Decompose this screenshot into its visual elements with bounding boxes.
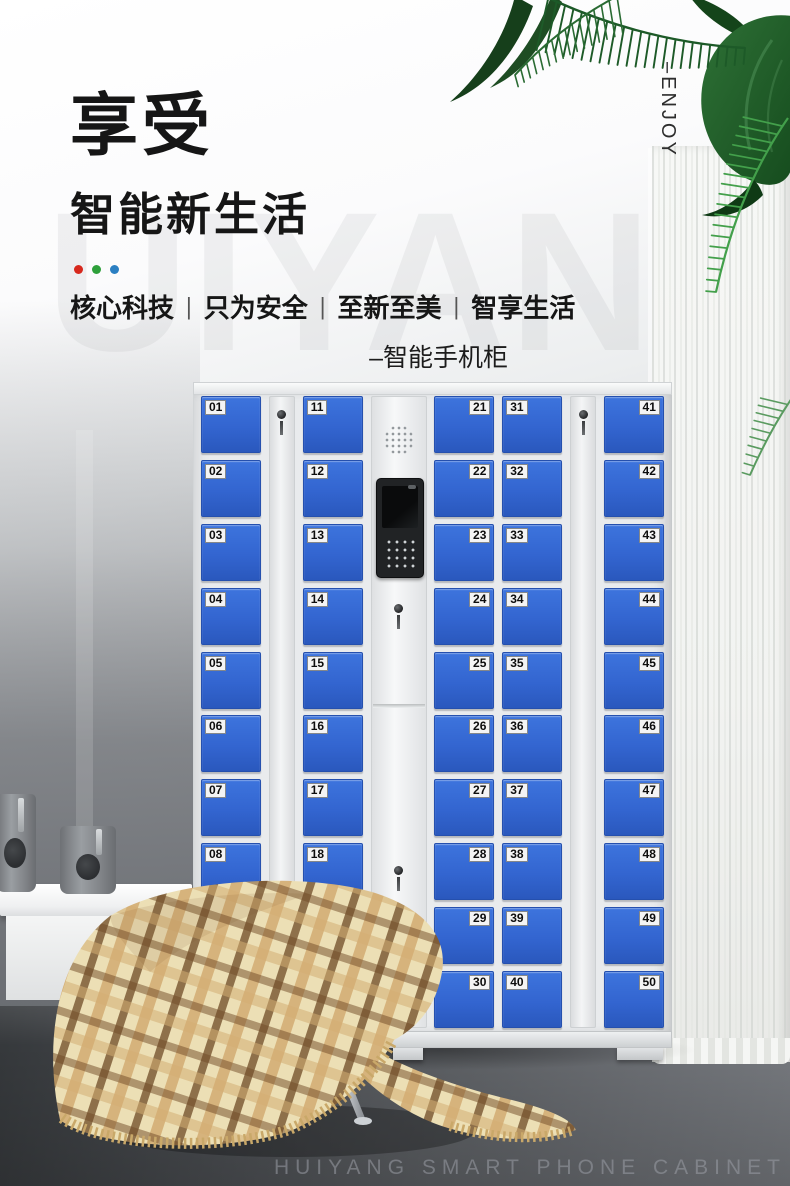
locker-door: 13 (303, 524, 363, 581)
locker-number-label: 44 (639, 592, 660, 607)
locker-number-label: 16 (307, 719, 328, 734)
tagline-part: 只为安全 (204, 288, 308, 325)
locker-number-label: 20 (307, 975, 328, 990)
locker-number-label: 37 (506, 783, 527, 798)
locker-number-label: 38 (506, 847, 527, 862)
tricolor-dots (74, 265, 575, 274)
locker-door: 20 (303, 971, 363, 1028)
locker-number-label: 12 (307, 464, 328, 479)
locker-door: 46 (604, 715, 664, 772)
locker-number-label: 50 (639, 975, 660, 990)
locker-number-label: 28 (469, 847, 490, 862)
cabinet-foot (617, 1046, 663, 1060)
locker-number-label: 11 (307, 400, 328, 415)
blue-dot-icon (110, 265, 119, 274)
locker-door: 23 (434, 524, 494, 581)
locker-door: 04 (201, 588, 261, 645)
sideboard-front (6, 916, 186, 1000)
locker-number-label: 35 (506, 656, 527, 671)
vase-glint (18, 798, 24, 832)
locker-number-label: 03 (205, 528, 226, 543)
locker-door: 45 (604, 652, 664, 709)
locker-number-label: 42 (639, 464, 660, 479)
locker-door: 26 (434, 715, 494, 772)
locker-door: 19 (303, 907, 363, 964)
locker-number-label: 04 (205, 592, 226, 607)
locker-door: 31 (502, 396, 562, 453)
keypad-icon (385, 538, 415, 568)
locker-number-label: 24 (469, 592, 490, 607)
locker-door: 15 (303, 652, 363, 709)
key-lock-icon (394, 604, 404, 629)
footer-watermark-text: HUIYANG SMART PHONE CABINET (274, 1156, 786, 1180)
locker-number-label: 23 (469, 528, 490, 543)
locker-number-label: 46 (639, 719, 660, 734)
locker-door: 34 (502, 588, 562, 645)
locker-door: 39 (502, 907, 562, 964)
locker-number-label: 13 (307, 528, 328, 543)
locker-number-label: 33 (506, 528, 527, 543)
locker-number-label: 25 (469, 656, 490, 671)
white-sideboard (0, 884, 192, 1006)
locker-number-label: 49 (639, 911, 660, 926)
locker-number-label: 45 (639, 656, 660, 671)
hero-text-block: 享受 智能新生活 核心科技 | 只为安全 | 至新至美 | 智享生活 –智能手机… (70, 92, 575, 374)
locker-number-label: 40 (506, 975, 527, 990)
locker-number-label: 08 (205, 847, 226, 862)
doors-41-50: 41424344454647484950 (604, 396, 664, 1028)
cabinet-columns: 0102030405060708091011121314151617181920… (201, 396, 664, 1028)
locker-number-label: 21 (469, 400, 490, 415)
locker-door: 10 (201, 971, 261, 1028)
locker-door: 32 (502, 460, 562, 517)
locker-number-label: 17 (307, 783, 328, 798)
tagline-part: 核心科技 (70, 288, 174, 325)
hero-title: 享受 (70, 92, 575, 160)
locker-door: 22 (434, 460, 494, 517)
locker-number-label: 41 (639, 400, 660, 415)
locker-door: 12 (303, 460, 363, 517)
locker-door: 01 (201, 396, 261, 453)
locker-door: 28 (434, 843, 494, 900)
locker-number-label: 34 (506, 592, 527, 607)
cabinet-top-cap (193, 382, 672, 395)
red-dot-icon (74, 265, 83, 274)
locker-number-label: 31 (506, 400, 527, 415)
doors-01-10: 01020304050607080910 (201, 396, 261, 1028)
locker-door: 47 (604, 779, 664, 836)
locker-door: 21 (434, 396, 494, 453)
locker-door: 37 (502, 779, 562, 836)
locker-number-label: 19 (307, 911, 328, 926)
doors-31-40: 31323334353637383940 (502, 396, 562, 1028)
locker-number-label: 02 (205, 464, 226, 479)
locker-number-label: 18 (307, 847, 328, 862)
locker-door: 16 (303, 715, 363, 772)
doors-21-30: 21222324252627282930 (434, 396, 494, 1028)
locker-number-label: 29 (469, 911, 490, 926)
locker-door: 27 (434, 779, 494, 836)
locker-door: 36 (502, 715, 562, 772)
locker-number-label: 22 (469, 464, 490, 479)
locker-door: 44 (604, 588, 664, 645)
gray-sculpture-vase (60, 826, 116, 894)
locker-number-label: 30 (469, 975, 490, 990)
locker-number-label: 01 (205, 400, 226, 415)
green-dot-icon (92, 265, 101, 274)
locker-number-label: 39 (506, 911, 527, 926)
locker-door: 40 (502, 971, 562, 1028)
locker-number-label: 47 (639, 783, 660, 798)
vase-glint (96, 829, 102, 855)
locker-door: 09 (201, 907, 261, 964)
key-lock-icon (578, 410, 588, 435)
locker-number-label: 36 (506, 719, 527, 734)
locker-door: 41 (604, 396, 664, 453)
locker-door: 35 (502, 652, 562, 709)
gray-sculpture-vase (0, 794, 36, 892)
hero-tagline: 核心科技 | 只为安全 | 至新至美 | 智享生活 (70, 288, 575, 325)
locker-door: 38 (502, 843, 562, 900)
locker-number-label: 09 (205, 911, 226, 926)
sheer-curtain (652, 146, 790, 1062)
locker-door: 06 (201, 715, 261, 772)
smart-phone-locker-cabinet: 0102030405060708091011121314151617181920… (193, 382, 672, 1048)
locker-door: 18 (303, 843, 363, 900)
locker-door: 02 (201, 460, 261, 517)
key-lock-icon (394, 866, 404, 891)
tagline-part: 至新至美 (337, 288, 441, 325)
locker-door: 49 (604, 907, 664, 964)
cabinet-foot (201, 1046, 229, 1060)
locker-door: 50 (604, 971, 664, 1028)
locker-number-label: 27 (469, 783, 490, 798)
locker-number-label: 48 (639, 847, 660, 862)
hero-subtitle: 智能新生活 (70, 178, 575, 243)
locker-door: 29 (434, 907, 494, 964)
locker-door: 48 (604, 843, 664, 900)
intercom-screen (382, 486, 418, 528)
vase-hole (76, 854, 100, 880)
locker-door: 08 (201, 843, 261, 900)
product-label: –智能手机柜 (70, 338, 508, 374)
key-lock-icon (277, 410, 287, 435)
locker-door: 07 (201, 779, 261, 836)
intercom-panel (376, 478, 424, 578)
control-console (371, 396, 427, 1028)
cabinet-base (193, 1031, 672, 1048)
locker-door: 25 (434, 652, 494, 709)
locker-door: 30 (434, 971, 494, 1028)
console-divider (373, 704, 425, 708)
locker-door: 24 (434, 588, 494, 645)
tagline-separator: | (320, 292, 326, 321)
locker-door: 05 (201, 652, 261, 709)
locker-number-label: 26 (469, 719, 490, 734)
vase-hole (4, 838, 26, 868)
cabinet-foot (393, 1046, 423, 1060)
locker-door: 17 (303, 779, 363, 836)
locker-number-label: 10 (205, 975, 226, 990)
locker-number-label: 06 (205, 719, 226, 734)
locker-number-label: 32 (506, 464, 527, 479)
camera-icon (408, 485, 416, 489)
tagline-separator: | (186, 292, 192, 321)
locker-door: 11 (303, 396, 363, 453)
locker-door: 14 (303, 588, 363, 645)
locker-door: 33 (502, 524, 562, 581)
locker-number-label: 15 (307, 656, 328, 671)
locker-door: 03 (201, 524, 261, 581)
lock-strip-right (570, 396, 596, 1028)
locker-number-label: 43 (639, 528, 660, 543)
doors-11-20: 11121314151617181920 (303, 396, 363, 1028)
tagline-separator: | (453, 292, 459, 321)
tagline-part: 智享生活 (471, 288, 575, 325)
locker-number-label: 07 (205, 783, 226, 798)
locker-number-label: 14 (307, 592, 328, 607)
lock-strip-left (269, 396, 295, 1028)
marketing-banner: UIYAN 享受 智能新生活 核心科技 | 只为安全 | 至新至美 | 智享生活… (0, 0, 790, 1186)
locker-door: 42 (604, 460, 664, 517)
locker-number-label: 05 (205, 656, 226, 671)
vertical-enjoy-tag: –ENJOY (656, 62, 679, 158)
speaker-grille-icon (381, 422, 417, 458)
locker-door: 43 (604, 524, 664, 581)
